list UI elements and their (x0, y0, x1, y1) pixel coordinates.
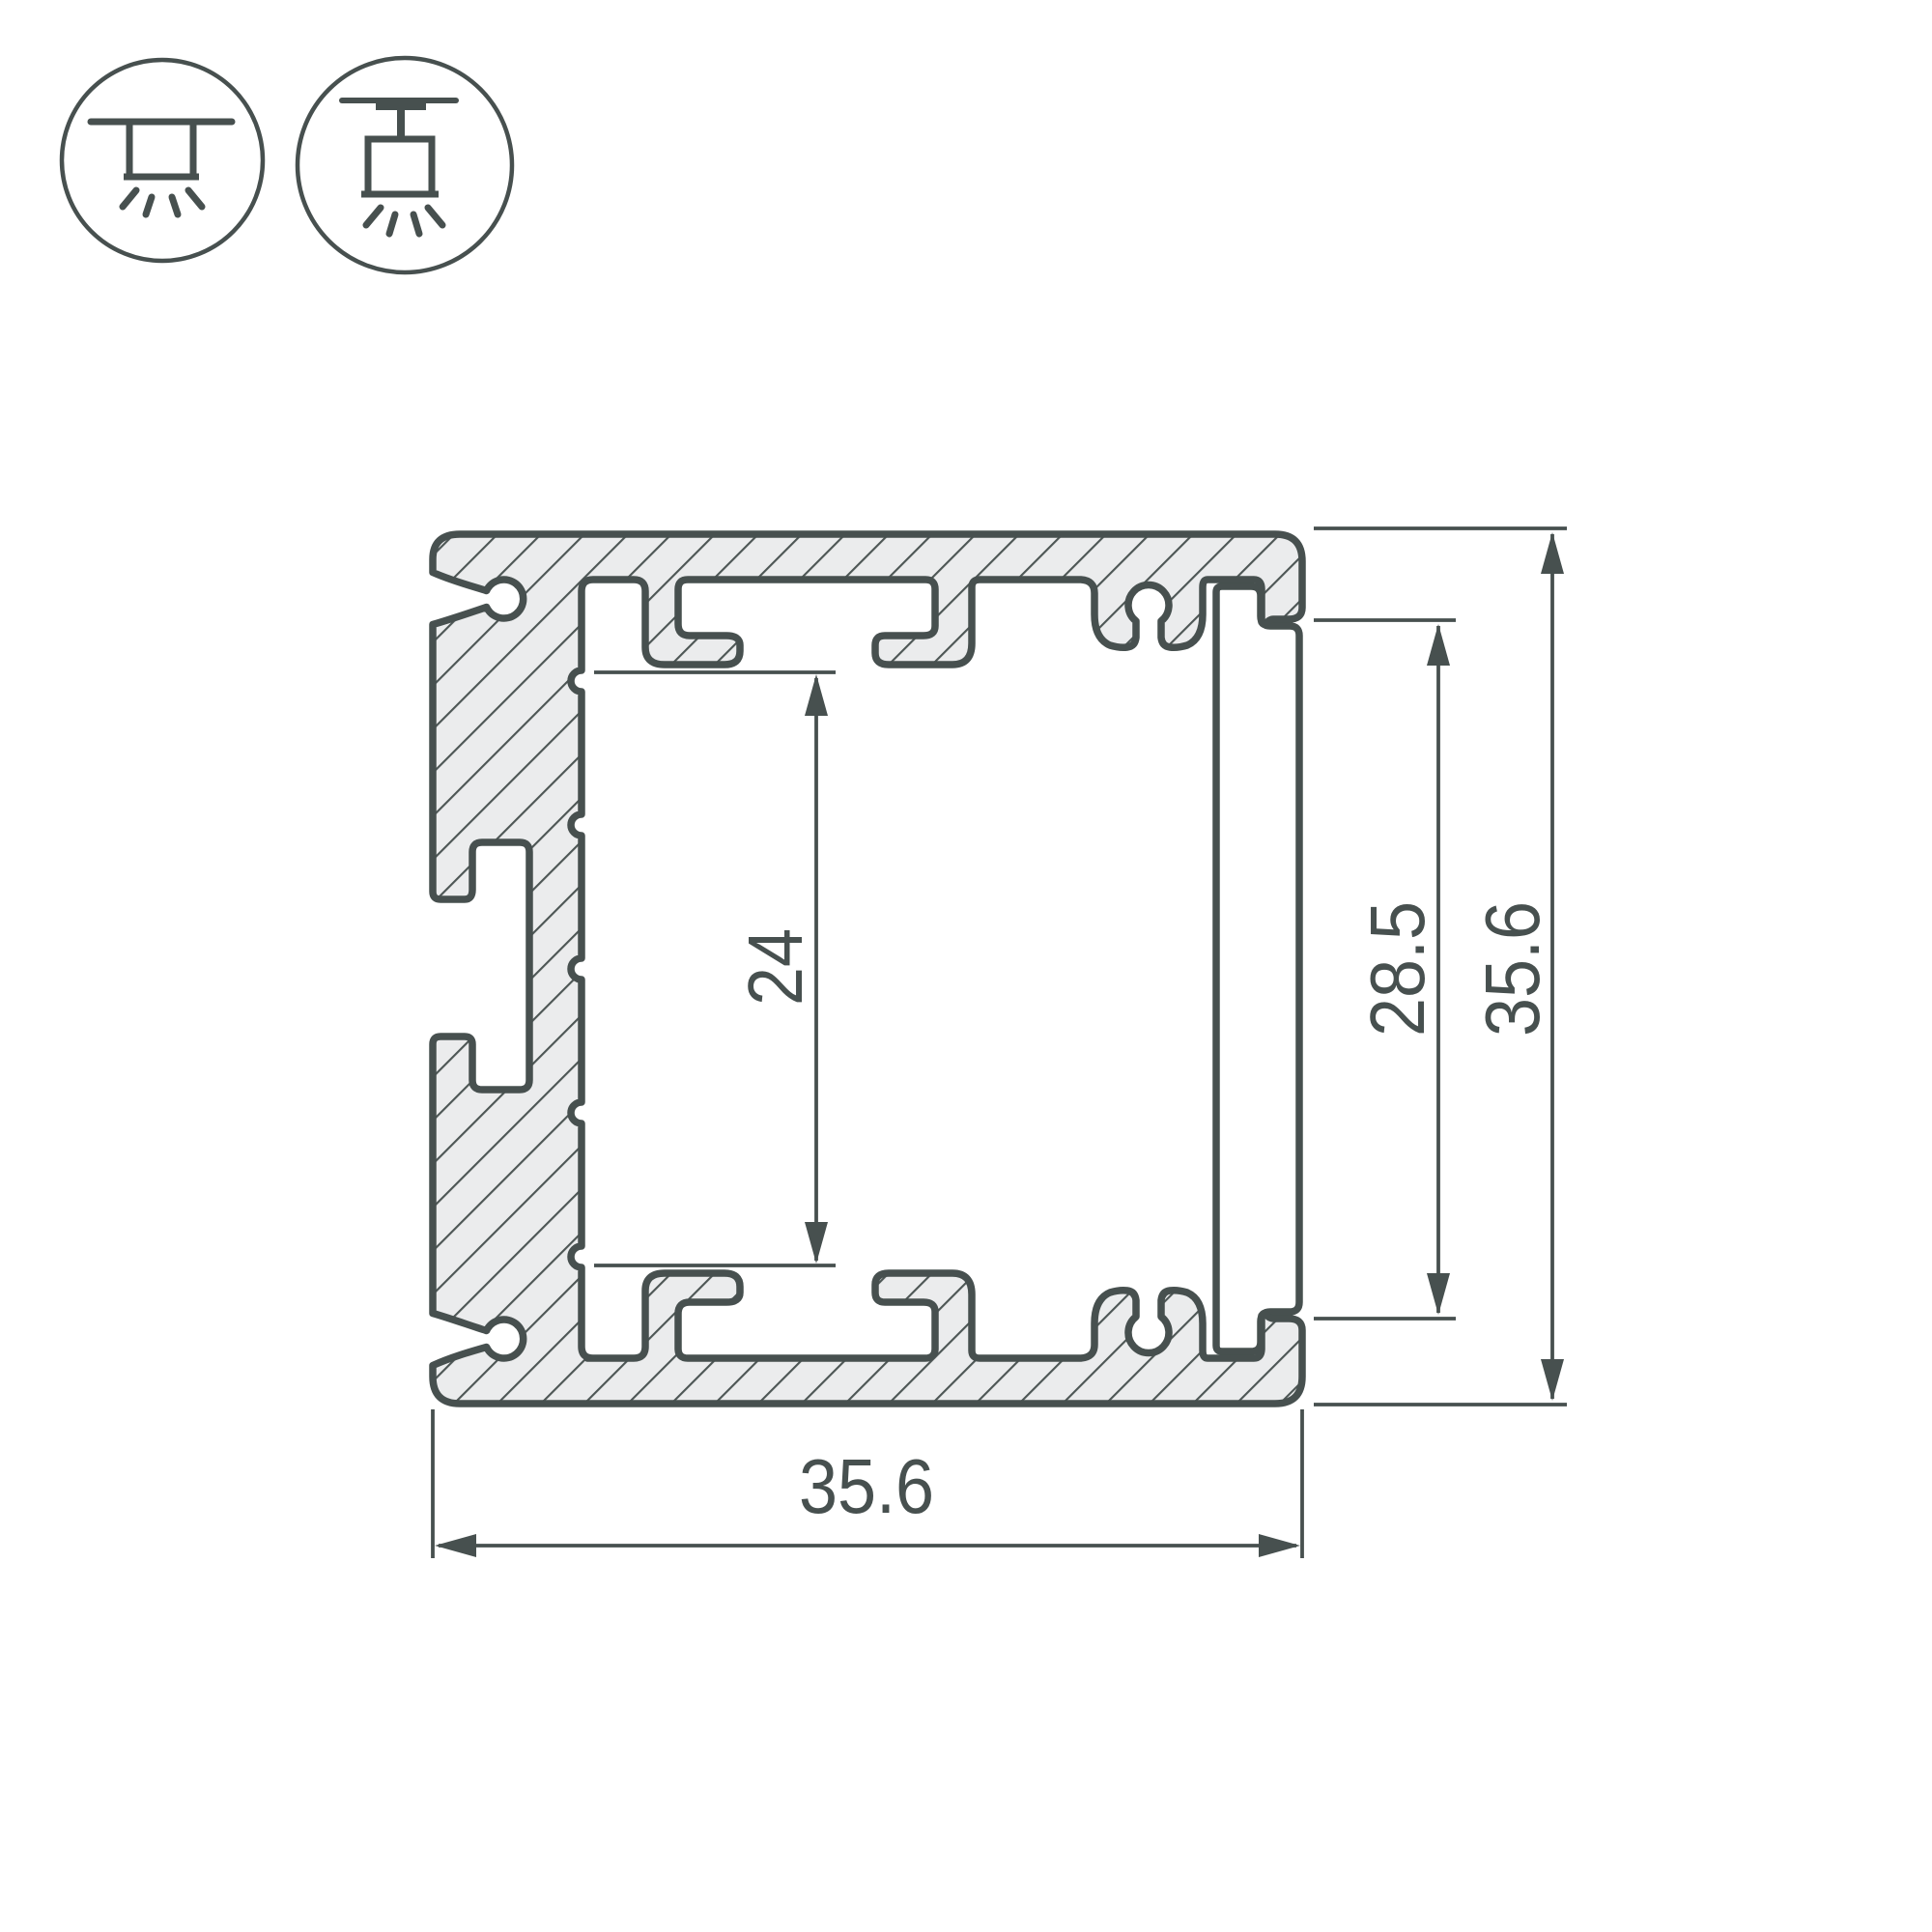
svg-text:35.6: 35.6 (1470, 901, 1556, 1037)
svg-text:24: 24 (733, 928, 819, 1006)
svg-text:35.6: 35.6 (799, 1444, 934, 1530)
svg-text:28.5: 28.5 (1355, 901, 1441, 1037)
